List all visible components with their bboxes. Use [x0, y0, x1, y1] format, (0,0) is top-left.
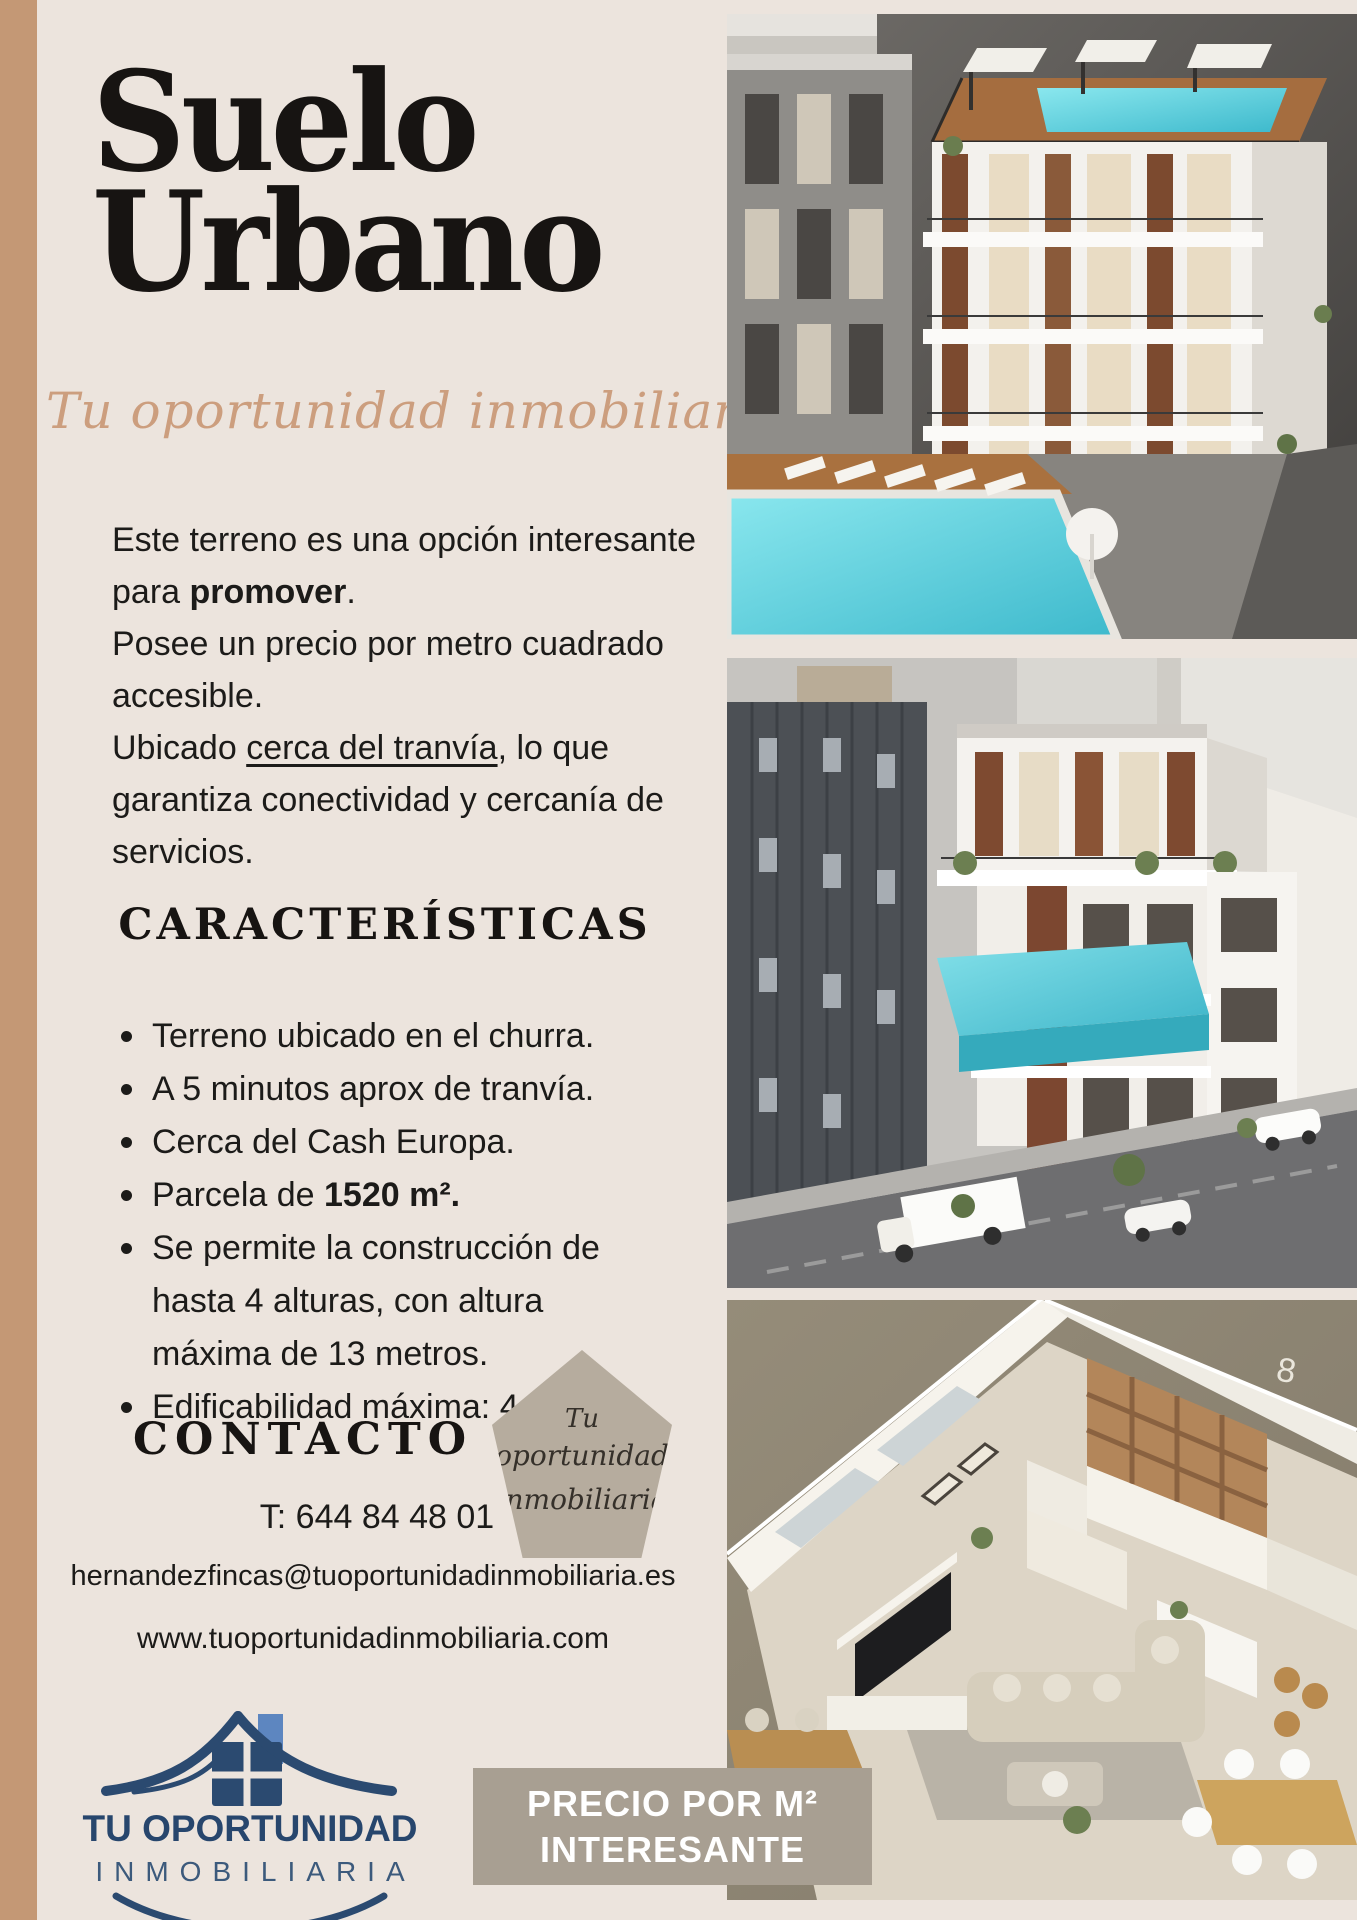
logo-name-line-2: INMOBILIARIA	[80, 1856, 420, 1888]
house-icon	[100, 1688, 400, 1806]
feature-item-3: Cerca del Cash Europa.	[112, 1116, 667, 1169]
contact-website: www.tuoportunidadinmobiliaria.com	[73, 1622, 673, 1656]
flyer-page: Suelo Urbano Tu oportunidad inmobiliaria…	[0, 0, 1357, 1920]
photo-white-building-pool	[727, 658, 1357, 1288]
intro-p1-period: .	[346, 573, 355, 611]
page-title: Suelo Urbano	[92, 62, 601, 302]
intro-paragraph-3: Ubicado cerca del tranvía, lo que garant…	[112, 722, 697, 878]
intro-p3-underlined: cerca del tranvía	[246, 729, 497, 767]
photo-building-rooftop-pool	[727, 14, 1357, 639]
feature-item-1: Terreno ubicado en el churra.	[112, 1010, 667, 1063]
price-banner-line-1: PRECIO POR M²	[527, 1781, 818, 1827]
feature-item-4-bold: 1520 m².	[324, 1176, 460, 1214]
intro-paragraph-1: Este terreno es una opción interesante p…	[112, 514, 697, 618]
contact-phone: T: 644 84 48 01	[112, 1498, 642, 1537]
intro-text: Este terreno es una opción interesante p…	[112, 514, 697, 878]
intro-p1-bold: promover	[190, 573, 347, 611]
brand-tagline: Tu oportunidad inmobiliaria	[46, 382, 736, 440]
logo-arc-icon	[100, 1890, 400, 1920]
feature-item-4-text: Parcela de	[152, 1176, 324, 1214]
price-banner-line-2: INTERESANTE	[540, 1827, 805, 1873]
logo-name-line-1: TU OPORTUNIDAD	[80, 1808, 420, 1850]
white-building-pool-illustration	[727, 658, 1357, 1288]
title-line-2: Urbano	[92, 182, 601, 302]
feature-item-2: A 5 minutos aprox de tranvía.	[112, 1063, 667, 1116]
contact-email: hernandezfincas@tuoportunidadinmobiliari…	[40, 1560, 706, 1593]
intro-paragraph-2: Posee un precio por metro cuadrado acces…	[112, 618, 697, 722]
feature-item-4: Parcela de 1520 m².	[112, 1169, 667, 1222]
building-rooftop-pool-illustration	[727, 14, 1357, 639]
features-heading: CARACTERÍSTICAS	[118, 900, 651, 950]
contact-heading: CONTACTO	[133, 1414, 473, 1465]
badge-line-1: Tu	[565, 1404, 599, 1434]
left-accent-stripe	[0, 0, 37, 1920]
badge-line-2: oportunidad	[495, 1434, 669, 1478]
price-banner: PRECIO POR M² INTERESANTE	[473, 1768, 872, 1885]
company-logo: TU OPORTUNIDAD INMOBILIARIA	[80, 1688, 420, 1920]
intro-p3-text: Ubicado	[112, 729, 246, 767]
